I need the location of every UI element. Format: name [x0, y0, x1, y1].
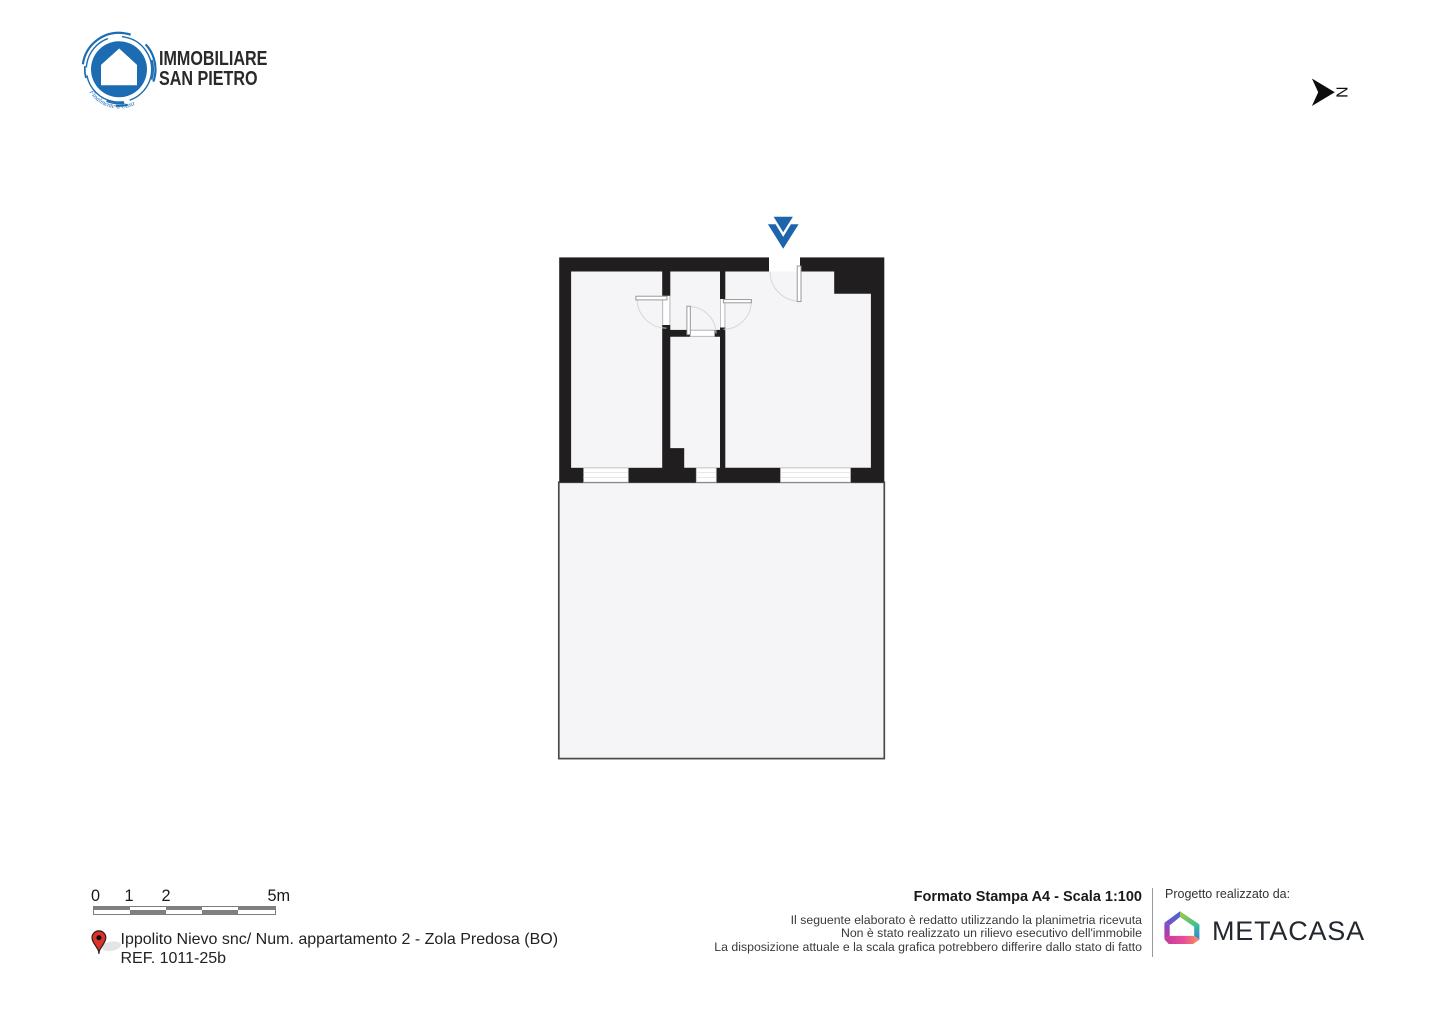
svg-text:N: N	[1332, 86, 1349, 98]
